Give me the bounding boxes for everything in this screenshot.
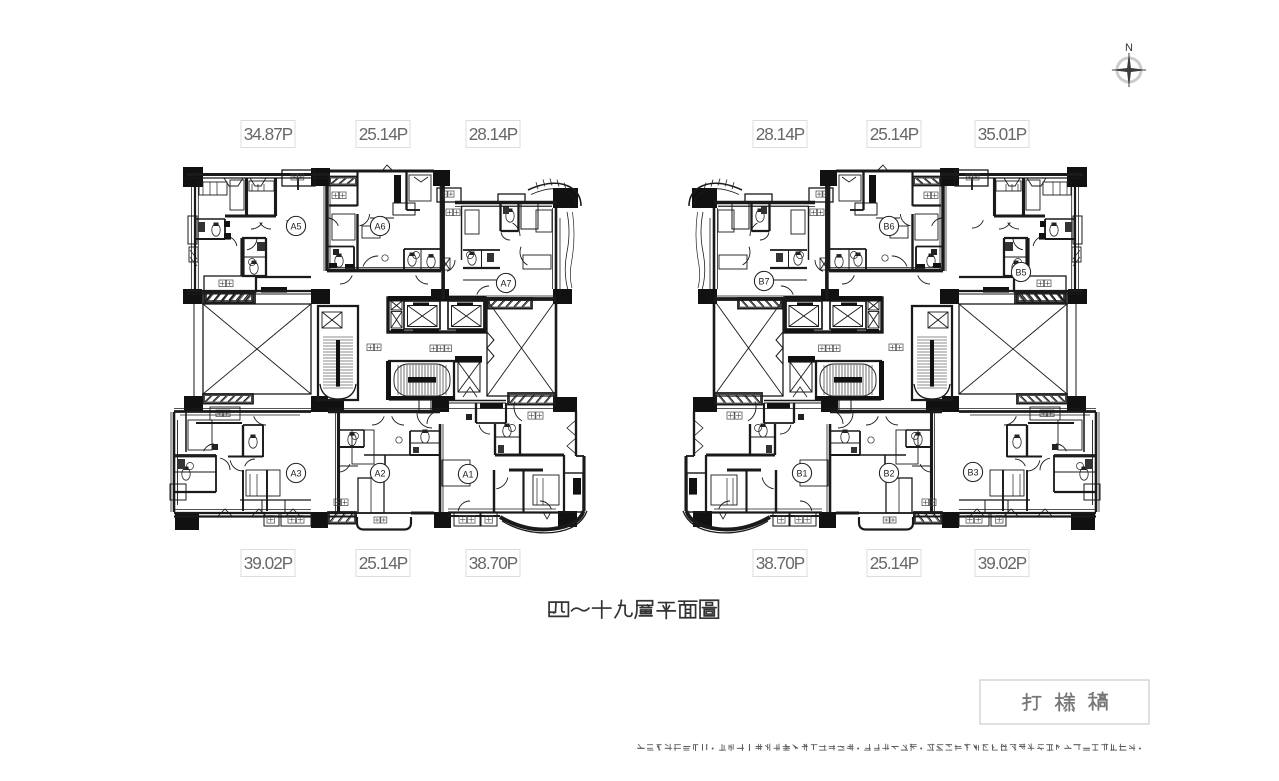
svg-text:39.02P: 39.02P	[244, 553, 293, 573]
svg-text:B6: B6	[883, 221, 894, 231]
svg-text:A2: A2	[374, 468, 385, 478]
svg-text:38.70P: 38.70P	[756, 553, 805, 573]
svg-text:N: N	[1125, 42, 1133, 54]
svg-text:B2: B2	[883, 468, 894, 478]
svg-text:34.87P: 34.87P	[244, 124, 293, 144]
svg-text:A5: A5	[290, 221, 301, 231]
svg-text:25.14P: 25.14P	[870, 553, 919, 573]
svg-text:28.14P: 28.14P	[469, 124, 518, 144]
svg-text:38.70P: 38.70P	[469, 553, 518, 573]
svg-text:B5: B5	[1015, 267, 1026, 277]
svg-text:25.14P: 25.14P	[359, 124, 408, 144]
svg-text:25.14P: 25.14P	[870, 124, 919, 144]
svg-text:B3: B3	[967, 467, 978, 477]
svg-text:A1: A1	[462, 469, 473, 479]
svg-text:B7: B7	[758, 276, 769, 286]
svg-text:39.02P: 39.02P	[978, 553, 1027, 573]
svg-text:B1: B1	[796, 468, 807, 478]
svg-text:25.14P: 25.14P	[359, 553, 408, 573]
svg-text:35.01P: 35.01P	[978, 124, 1027, 144]
svg-text:A3: A3	[290, 468, 301, 478]
svg-text:28.14P: 28.14P	[756, 124, 805, 144]
svg-text:A7: A7	[500, 278, 511, 288]
svg-text:A6: A6	[374, 221, 385, 231]
